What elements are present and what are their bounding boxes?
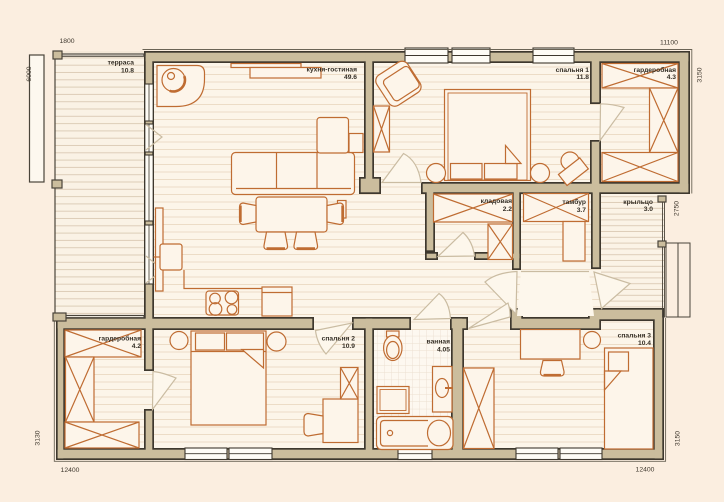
svg-text:гардеробная: гардеробная <box>99 335 141 343</box>
svg-text:6000: 6000 <box>26 66 33 81</box>
svg-text:12400: 12400 <box>636 467 655 474</box>
svg-text:10.9: 10.9 <box>342 343 355 350</box>
svg-text:12400: 12400 <box>61 467 80 474</box>
svg-text:1800: 1800 <box>59 38 74 45</box>
svg-text:спальня 1: спальня 1 <box>556 67 590 74</box>
svg-text:тамбур: тамбур <box>562 198 586 206</box>
svg-text:кладовая: кладовая <box>481 198 512 205</box>
svg-text:гардеробная: гардеробная <box>634 66 676 74</box>
svg-text:кухня-гостиная: кухня-гостиная <box>307 67 358 74</box>
svg-text:49.6: 49.6 <box>344 74 357 81</box>
svg-text:3150: 3150 <box>675 431 682 446</box>
svg-text:3150: 3150 <box>697 67 704 82</box>
svg-text:10.8: 10.8 <box>121 68 134 75</box>
svg-text:4.3: 4.3 <box>667 74 677 81</box>
svg-text:ванная: ванная <box>427 339 451 346</box>
svg-text:3.0: 3.0 <box>644 206 654 213</box>
svg-text:3.7: 3.7 <box>577 207 587 214</box>
svg-text:4.2: 4.2 <box>132 343 142 350</box>
svg-text:3130: 3130 <box>35 430 42 445</box>
svg-text:терраса: терраса <box>108 60 135 67</box>
svg-text:4.05: 4.05 <box>437 347 450 354</box>
svg-text:11100: 11100 <box>660 40 678 47</box>
svg-text:2.2: 2.2 <box>503 206 513 213</box>
svg-text:10.4: 10.4 <box>638 340 651 347</box>
svg-text:спальня 2: спальня 2 <box>322 336 356 343</box>
svg-text:2750: 2750 <box>674 201 681 216</box>
svg-text:спальня 3: спальня 3 <box>618 333 652 340</box>
svg-text:11.8: 11.8 <box>576 74 589 81</box>
svg-text:крыльцо: крыльцо <box>623 199 653 206</box>
